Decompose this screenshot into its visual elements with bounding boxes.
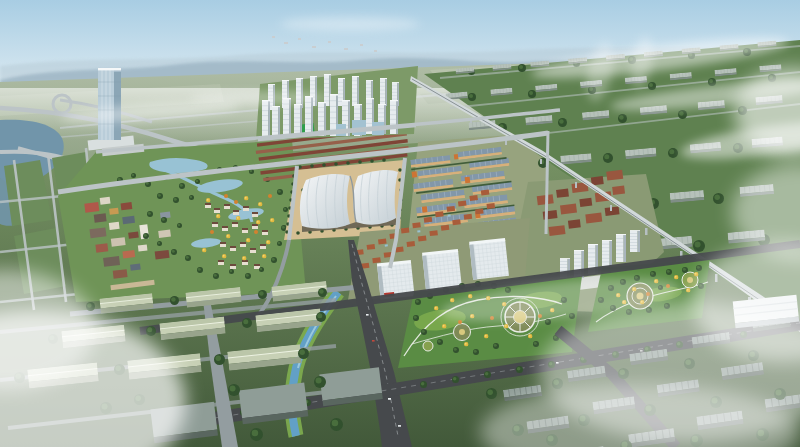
plaza-circle-mid bbox=[454, 324, 471, 341]
office-block bbox=[469, 238, 509, 280]
expo-roof-east bbox=[353, 170, 398, 225]
tower-crown bbox=[98, 68, 121, 70]
cloud-wisp bbox=[280, 17, 420, 31]
aerial-rendering: Aerial bird's-eye architectural renderin… bbox=[0, 0, 800, 447]
expo-hall bbox=[284, 158, 404, 240]
office-block bbox=[422, 249, 462, 291]
pool bbox=[448, 214, 451, 216]
pool bbox=[417, 230, 420, 232]
street bbox=[546, 131, 548, 234]
cloud-wisp bbox=[190, 92, 330, 104]
pool bbox=[385, 244, 388, 246]
plaza-circle-small bbox=[423, 341, 433, 351]
